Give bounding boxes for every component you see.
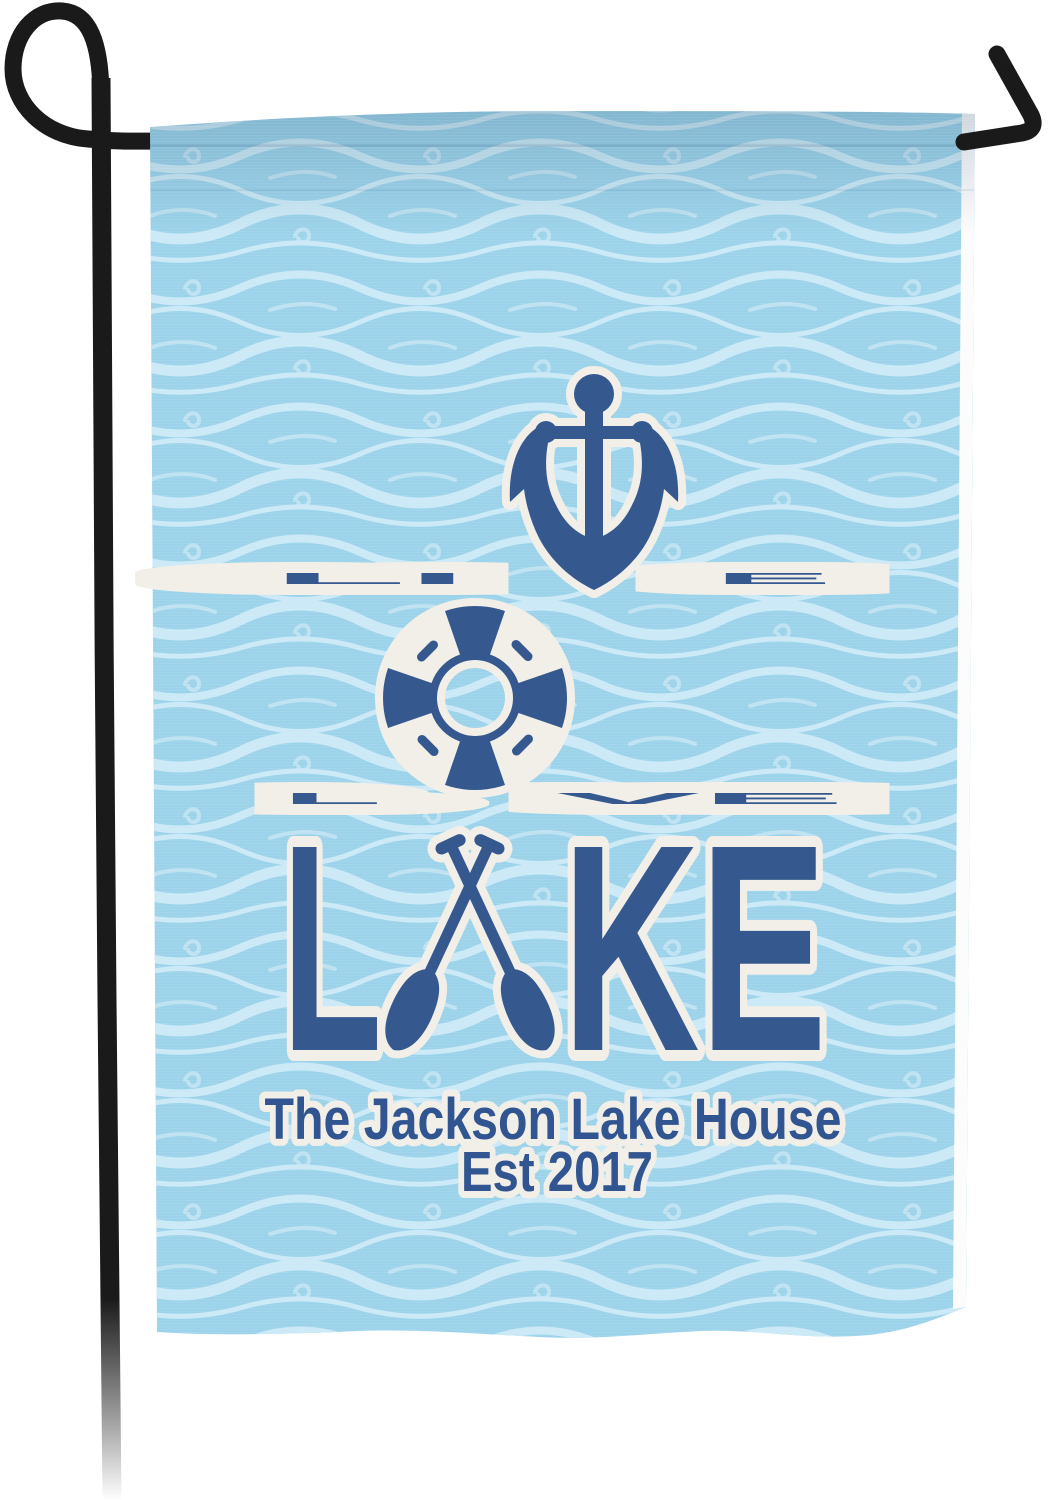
word-lake-left-text: L [282,783,382,1113]
stand-top-loop [13,11,163,141]
flag-stand [13,11,163,1500]
garden-flag-product-photo: LI E L [0,0,1052,1500]
caption-line2: Est 2017 [461,1140,653,1204]
stand-pole [101,78,112,1500]
word-live-right-text: E [714,571,836,588]
word-live-left-text: LI [272,571,468,588]
word-lake-right-text: KE [562,783,827,1113]
flag: LI E L [140,100,990,1350]
product-photo-canvas: LI E L [0,0,1052,1500]
